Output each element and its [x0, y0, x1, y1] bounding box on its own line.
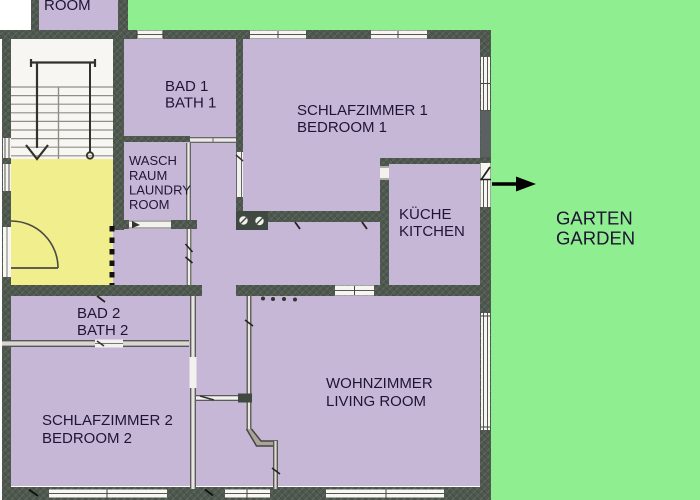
- svg-text:WOHNZIMMER: WOHNZIMMER: [326, 375, 433, 392]
- svg-text:KÜCHE: KÜCHE: [399, 205, 452, 223]
- svg-text:BEDROOM 2: BEDROOM 2: [42, 430, 132, 447]
- svg-text:WASCH: WASCH: [129, 153, 177, 168]
- svg-text:KITCHEN: KITCHEN: [399, 223, 465, 240]
- svg-text:GARTEN: GARTEN: [556, 208, 633, 229]
- svg-text:BEDROOM 1: BEDROOM 1: [297, 119, 387, 136]
- svg-text:ROOM: ROOM: [129, 197, 169, 212]
- svg-text:BAD 1: BAD 1: [165, 78, 208, 95]
- svg-text:SCHLAFZIMMER 1: SCHLAFZIMMER 1: [297, 102, 428, 119]
- svg-text:SCHLAFZIMMER 2: SCHLAFZIMMER 2: [42, 412, 173, 429]
- svg-text:RAUM: RAUM: [129, 168, 167, 183]
- svg-text:ROOM: ROOM: [44, 0, 91, 14]
- svg-text:LIVING ROOM: LIVING ROOM: [326, 393, 426, 410]
- svg-text:BAD 2: BAD 2: [77, 305, 120, 322]
- svg-text:GARDEN: GARDEN: [556, 228, 635, 249]
- svg-text:LAUNDRY: LAUNDRY: [129, 183, 191, 198]
- svg-text:BATH 2: BATH 2: [77, 322, 128, 339]
- svg-text:BATH 1: BATH 1: [165, 95, 216, 112]
